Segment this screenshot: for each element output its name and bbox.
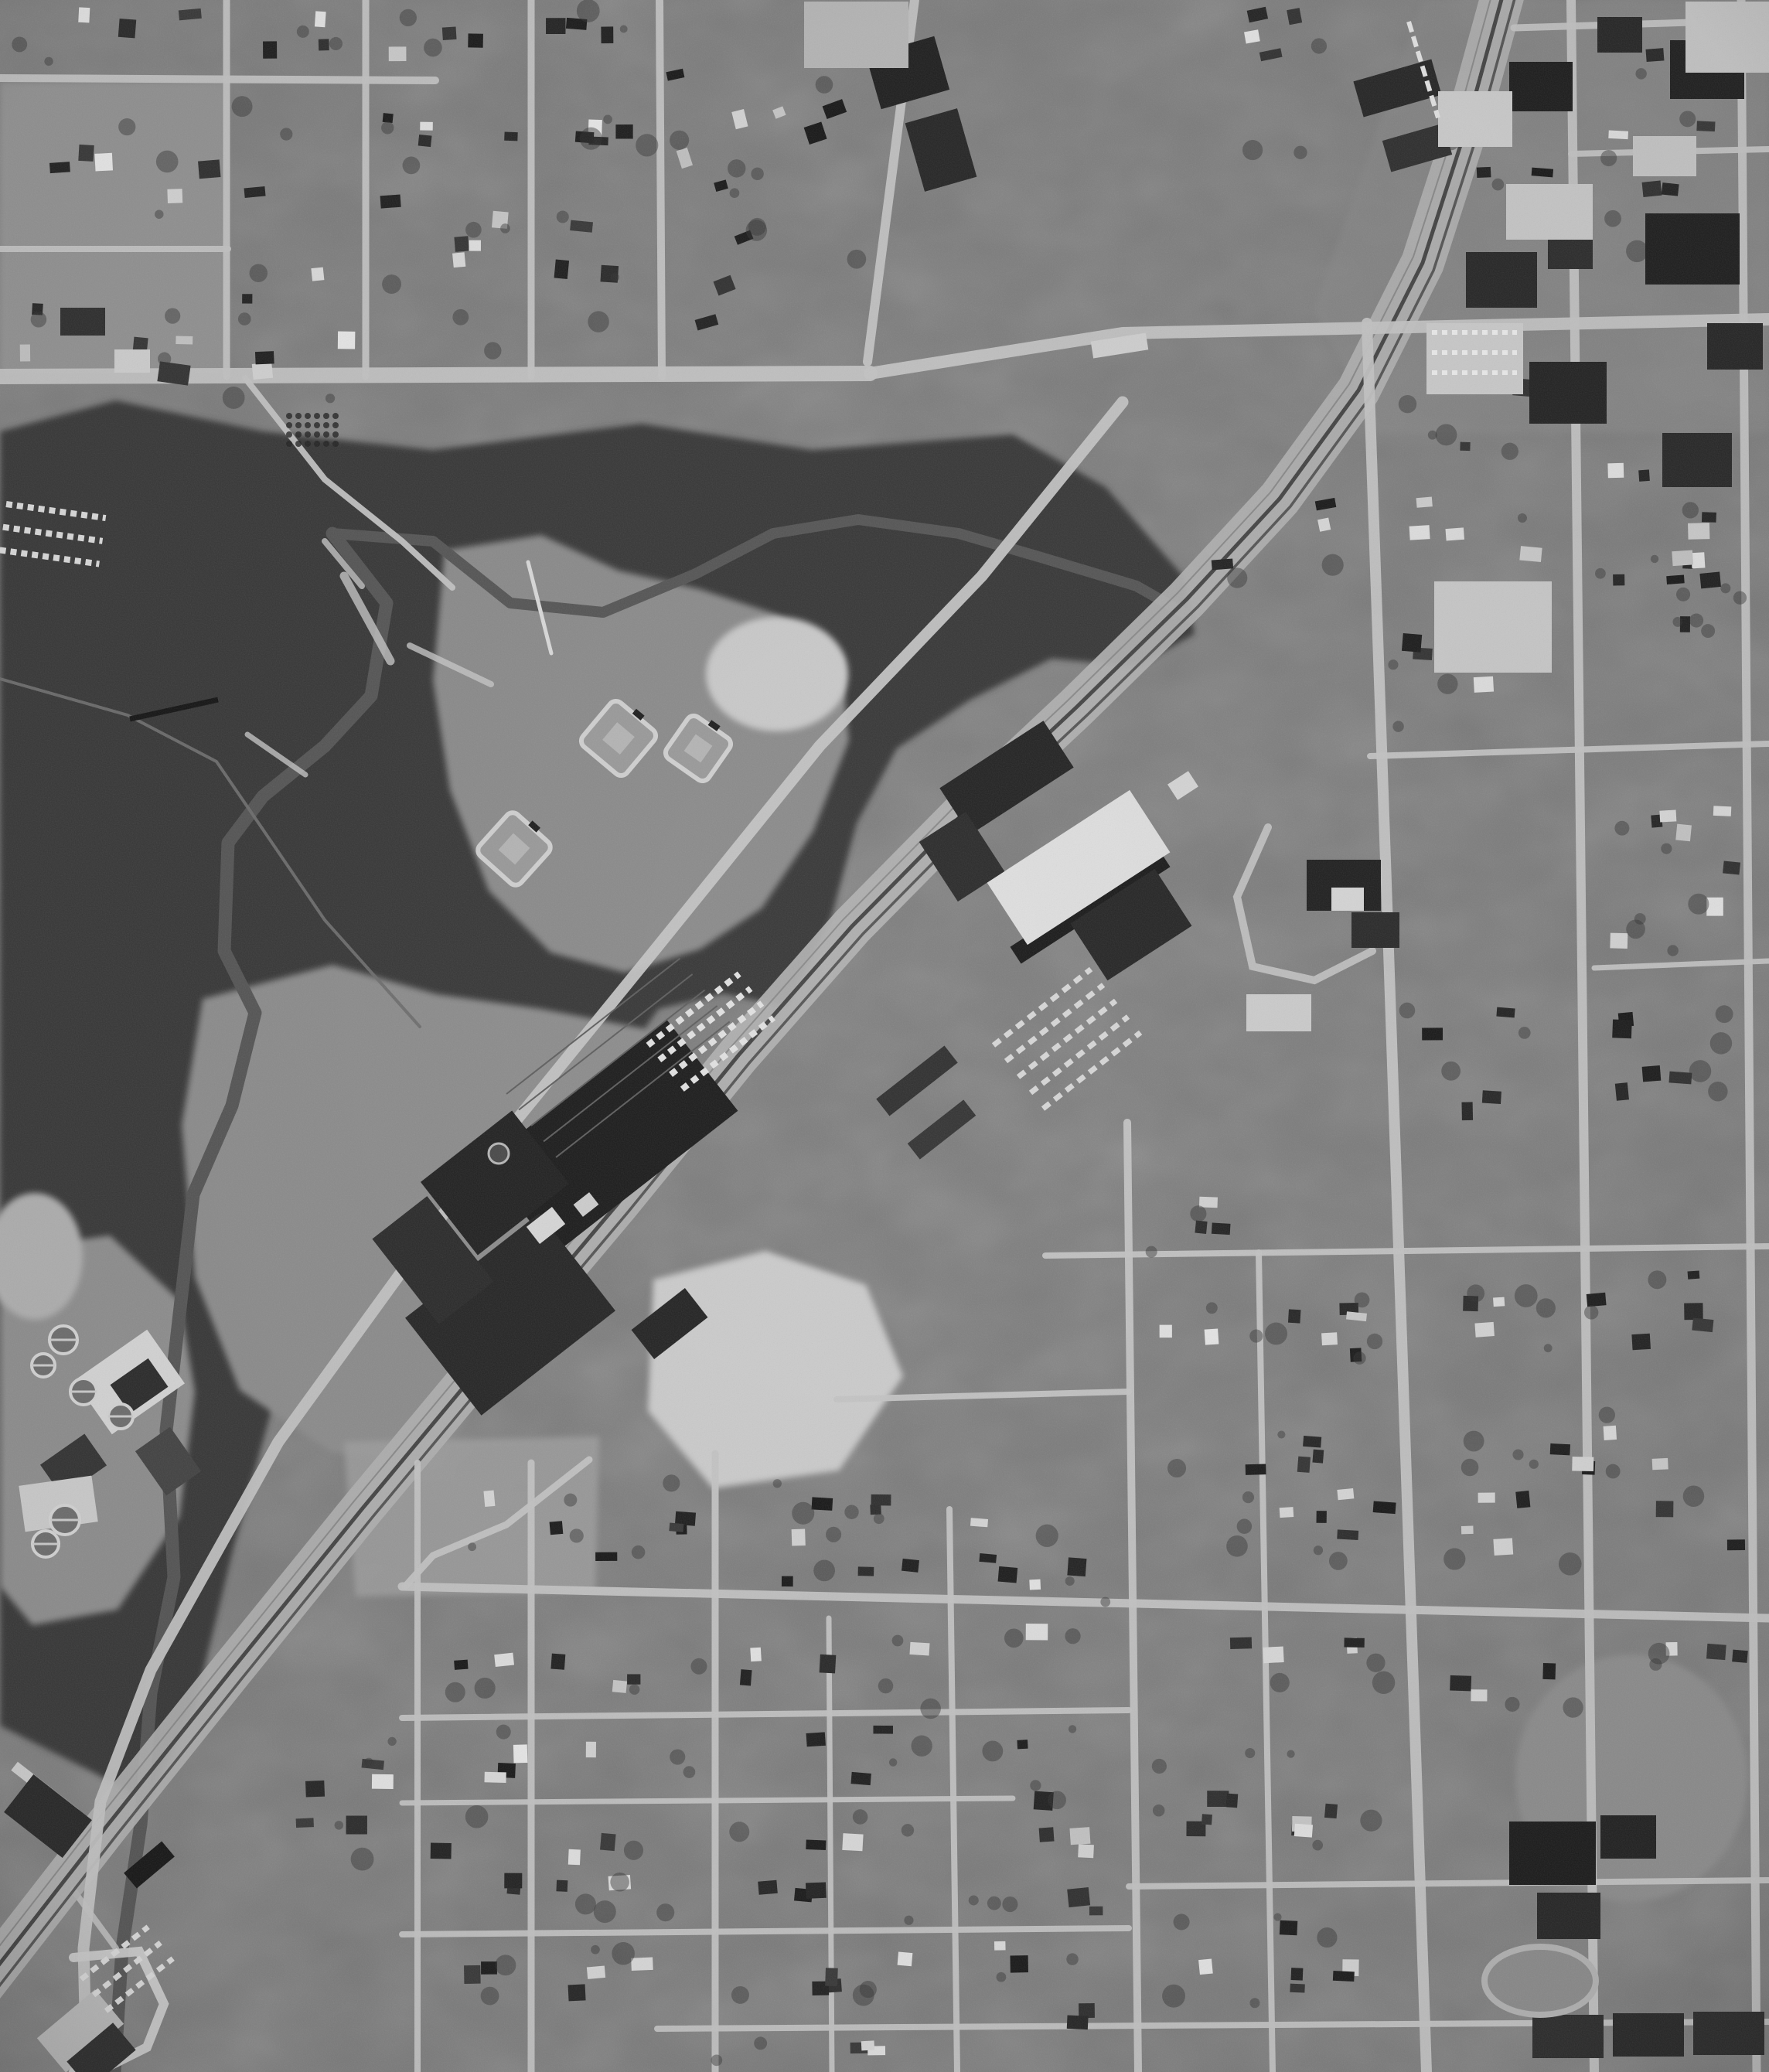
vignette [0,0,1769,2072]
aerial-photo-svg [0,0,1769,2072]
aerial-photograph: Black-and-white aerial photograph of a s… [0,0,1769,2072]
